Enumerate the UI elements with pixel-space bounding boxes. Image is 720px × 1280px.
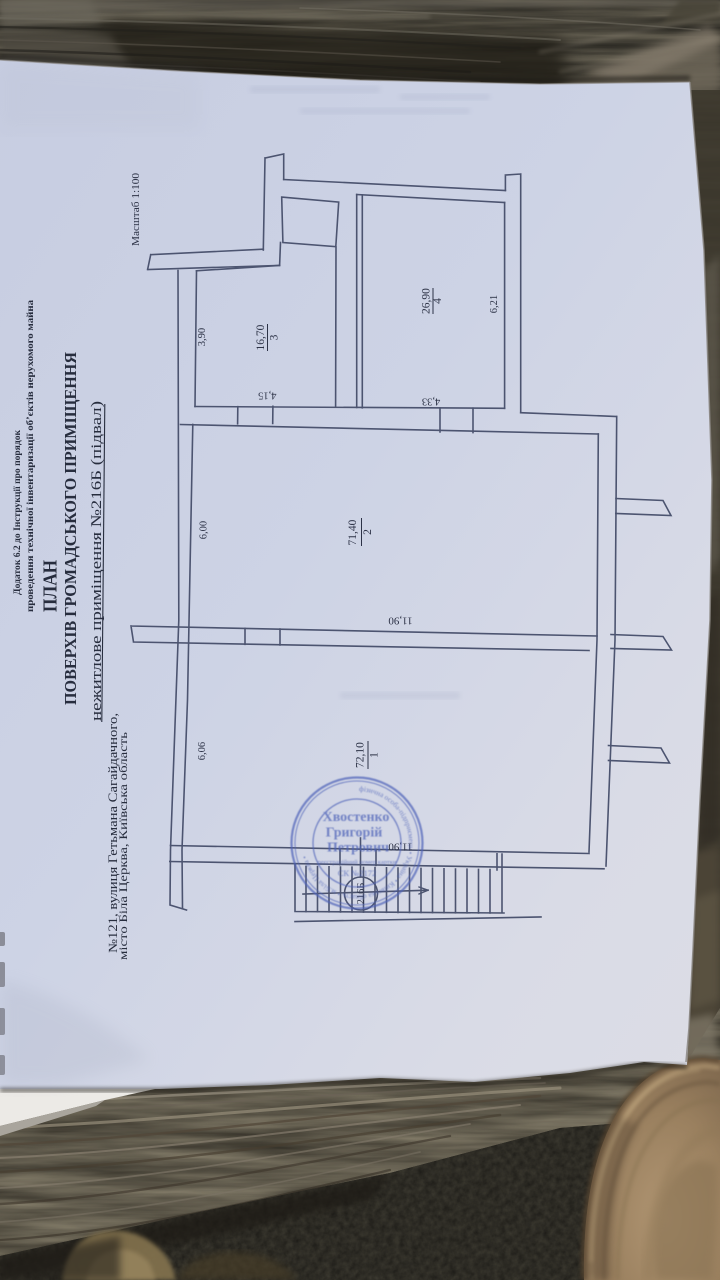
svg-text:3: 3 <box>269 334 281 340</box>
svg-text:4,33: 4,33 <box>422 396 440 407</box>
svg-text:72,10: 72,10 <box>355 742 367 768</box>
svg-text:Хвостенко: Хвостенко <box>323 810 390 825</box>
svg-text:1: 1 <box>369 752 381 758</box>
svg-text:71,40: 71,40 <box>347 519 359 545</box>
svg-text:6,21: 6,21 <box>489 295 500 313</box>
svg-text:6,00: 6,00 <box>199 521 210 539</box>
svg-text:ПОВЕРХІВ ГРОМАДСЬКОГО ПРИМІЩЕН: ПОВЕРХІВ ГРОМАДСЬКОГО ПРИМІЩЕННЯ <box>61 352 80 705</box>
svg-text:11,90: 11,90 <box>388 615 413 627</box>
svg-text:ПЛАН: ПЛАН <box>40 560 62 612</box>
svg-text:4,15: 4,15 <box>258 390 276 401</box>
svg-text:Петрович: Петрович <box>327 841 389 856</box>
svg-text:16,70: 16,70 <box>255 324 267 350</box>
svg-text:місто Біла Церква, Київська об: місто Біла Церква, Київська область <box>118 732 130 960</box>
svg-text:3,90: 3,90 <box>197 328 208 346</box>
svg-text:6,06: 6,06 <box>197 742 208 760</box>
svg-text:Додаток 6.2 до Інструкції про: Додаток 6.2 до Інструкції про порядок <box>12 429 22 595</box>
svg-text:26,90: 26,90 <box>420 288 432 314</box>
svg-text:Григорій: Григорій <box>326 826 383 841</box>
svg-text:4: 4 <box>432 298 444 304</box>
svg-text:Масштаб 1:100: Масштаб 1:100 <box>131 173 142 246</box>
svg-text:проведення технічної інвентари: проведення технічної інвентаризації об’є… <box>25 300 36 612</box>
svg-text:СК №2172: СК №2172 <box>338 868 377 878</box>
svg-text:2: 2 <box>362 529 374 535</box>
svg-text:реєстраційний номер картки: реєстраційний номер картки <box>318 859 397 866</box>
